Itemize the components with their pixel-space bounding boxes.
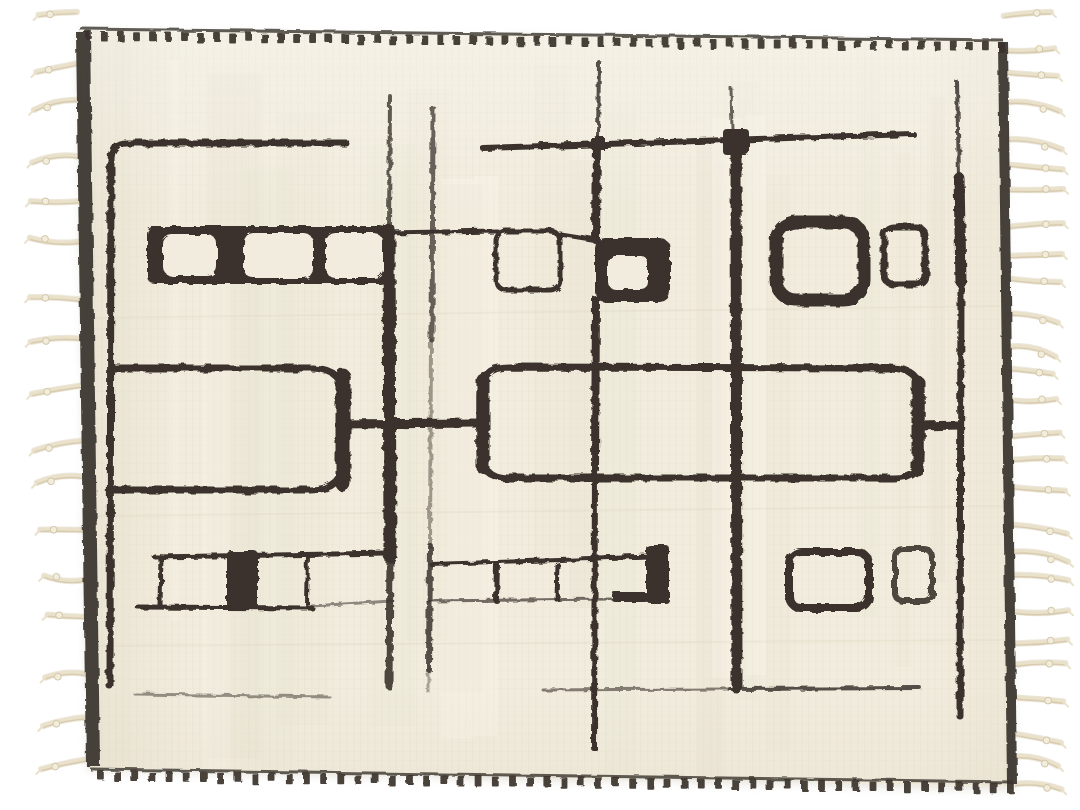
stitch-mark [303, 773, 310, 785]
stitch-mark [698, 779, 705, 789]
fringe-tassel [1012, 637, 1072, 645]
fringe-tassel [25, 295, 81, 303]
stitch-mark [534, 36, 541, 45]
stitch-mark [389, 35, 396, 45]
stitch-mark [784, 779, 791, 789]
stitch-mark [229, 33, 236, 43]
stitch-mark [101, 32, 108, 42]
stitch-mark [337, 773, 344, 784]
fringe-tassel [26, 198, 80, 206]
stitch-mark [245, 32, 252, 41]
stitch-mark [902, 41, 909, 51]
fringe-tassel [1005, 72, 1063, 81]
stitch-mark [372, 774, 379, 785]
fringe-tassel [38, 717, 87, 731]
stitch-mark [662, 37, 669, 47]
vertical-line-5-main [736, 155, 737, 688]
stitch-mark [437, 35, 444, 46]
stitch-mark [678, 39, 685, 50]
stitch-mark [165, 33, 172, 42]
stitch-mark [578, 776, 585, 786]
vertical-line-2-main [389, 230, 390, 556]
stitch-mark [389, 775, 396, 787]
stitch-mark [518, 37, 525, 48]
stitch-mark [85, 31, 92, 40]
fringe-tassel [1014, 756, 1063, 771]
stitch-mark [406, 774, 413, 784]
stitch-mark [904, 782, 911, 794]
fringe-tassel [1011, 575, 1073, 585]
stitch-mark [421, 36, 428, 46]
fringe-tassel [1014, 783, 1066, 794]
stitch-mark [357, 35, 364, 46]
stitch-mark [405, 34, 412, 43]
center-vertical-mid [596, 140, 597, 240]
stitch-mark [614, 38, 621, 47]
fringe-tassel [1010, 430, 1065, 438]
stitch-mark [286, 774, 293, 785]
stitch-mark [938, 782, 945, 793]
connector-left [344, 423, 480, 424]
stitch-mark [550, 37, 557, 47]
fringe-tassel [1009, 369, 1058, 379]
stitch-mark [790, 39, 797, 49]
stitch-mark [261, 34, 268, 44]
stitch-mark [806, 40, 813, 49]
stitch-mark [561, 777, 568, 789]
motif-link-line-1 [388, 231, 497, 233]
stitch-mark [664, 779, 671, 789]
fringe-tassel [1013, 697, 1068, 706]
center-vertical-top [598, 62, 599, 140]
stitch-mark [453, 36, 460, 45]
junction-blob-center [591, 137, 604, 150]
stitch-mark [325, 35, 332, 44]
stitch-mark [990, 782, 997, 794]
stitch-mark [543, 776, 550, 787]
stitch-mark [870, 41, 877, 51]
stitch-mark [767, 780, 774, 791]
stitch-mark [742, 39, 749, 49]
fringe-tassel [1008, 346, 1060, 361]
stitch-mark [921, 781, 928, 791]
vertical-line-2-top [389, 96, 390, 229]
stitch-mark [595, 778, 602, 789]
stitch-mark [598, 36, 605, 47]
fringe-tassel [1008, 314, 1063, 328]
fringe-tassel [31, 64, 77, 78]
stitch-mark [149, 772, 156, 782]
stitch-mark [252, 773, 259, 784]
stitch-mark [475, 775, 482, 787]
stitch-mark [681, 778, 688, 789]
rug-image [0, 0, 1080, 810]
fringe-tassel [1014, 734, 1066, 748]
center-vertical-low2 [594, 470, 595, 748]
bottom-line-center [543, 689, 730, 690]
stitch-mark [956, 781, 963, 791]
stitch-mark [309, 33, 316, 43]
stitch-mark [887, 780, 894, 791]
stitch-mark [181, 32, 188, 41]
fringe-tassel [43, 612, 86, 620]
stitch-mark [469, 35, 476, 45]
stitch-mark [183, 772, 190, 782]
fringe-tassel [1006, 139, 1067, 154]
fringe-tassel [29, 441, 83, 456]
stitch-mark [133, 32, 140, 41]
stitch-mark [801, 781, 808, 792]
stitch-mark [629, 778, 636, 789]
fringe-tassel [1004, 10, 1056, 18]
stitch-mark [582, 37, 589, 47]
stitch-mark [200, 771, 207, 782]
stitch-mark [492, 776, 499, 786]
stitch-mark [973, 783, 980, 794]
stitch-mark [131, 771, 138, 783]
fringe-tassel [32, 476, 84, 488]
stitch-mark [630, 37, 637, 47]
vertical-line-3-top [432, 108, 433, 340]
stitch-mark [423, 776, 430, 787]
stitch-mark [998, 42, 1005, 53]
fringe-tassel [1011, 551, 1073, 566]
fringe-tassel [1009, 396, 1061, 404]
stitch-mark [355, 775, 362, 785]
rug-body [60, 20, 1030, 809]
stitch-mark [197, 33, 204, 44]
fringe-tassel [25, 236, 80, 245]
fringe-tassel [29, 100, 78, 115]
stitch-mark [217, 773, 224, 785]
stitch-mark [835, 781, 842, 791]
stitch-mark [934, 42, 941, 51]
fringe-tassel [1007, 278, 1065, 287]
fringe-tassel [1007, 251, 1067, 259]
stitch-mark [646, 777, 653, 789]
stitch-mark [853, 780, 860, 791]
fringe-tassel [27, 155, 79, 167]
stitch-mark [886, 40, 893, 49]
rug-photo [0, 0, 1080, 810]
stitch-mark [526, 777, 533, 787]
fringe-tassel [1013, 660, 1071, 668]
stitch-mark [710, 39, 717, 49]
stitch-mark [950, 40, 957, 50]
stitch-mark [341, 33, 348, 43]
stitch-mark [509, 775, 516, 786]
stitch-mark [485, 36, 492, 45]
vertical-line-3-mid [430, 340, 431, 546]
stitch-mark [277, 33, 284, 44]
right-frame-mid [959, 178, 961, 282]
selvage-left [83, 32, 93, 766]
fringe-tassel [1005, 102, 1065, 117]
motif-window-band-top [147, 226, 388, 284]
stitch-mark [715, 778, 722, 789]
fringe-tassel [27, 385, 82, 399]
fringe-tassel [41, 673, 87, 683]
stitch-mark [646, 38, 653, 47]
stitch-mark [269, 772, 276, 782]
stitch-mark [213, 32, 220, 41]
stitch-mark [440, 775, 447, 785]
stitch-mark [774, 40, 781, 49]
center-vertical-low [595, 300, 596, 470]
stitch-mark [694, 38, 701, 47]
fringe-tassel [34, 11, 77, 20]
fringe-tassel [1006, 186, 1068, 194]
stitch-mark [818, 780, 825, 792]
fringe-tassel [1010, 456, 1068, 464]
right-frame-top [957, 82, 959, 178]
stitch-mark [458, 776, 465, 787]
fringe-tassel [1010, 486, 1070, 495]
motif-solid-square-with-window [595, 238, 670, 302]
stitch-mark [612, 777, 619, 787]
stitch-mark [822, 39, 829, 49]
fringe-tassel [35, 526, 84, 534]
fringe-tassel [26, 338, 82, 347]
vertical-line-5-top [731, 88, 732, 130]
stitch-mark [982, 41, 989, 51]
stitch-mark [918, 40, 925, 51]
stitch-mark [117, 31, 124, 42]
right-frame-low [960, 282, 961, 716]
stitch-mark [1007, 783, 1014, 793]
stitch-mark [758, 38, 765, 49]
stitch-mark [149, 31, 156, 41]
fringe-tassel [1012, 607, 1073, 615]
stitch-mark [114, 771, 121, 782]
stitch-mark [566, 36, 573, 45]
connector-right [921, 425, 959, 426]
fringe-tassel [1007, 221, 1068, 229]
stitch-mark [293, 34, 300, 43]
fringe-tassel [39, 573, 85, 582]
stitch-mark [97, 770, 104, 780]
stitch-mark [854, 39, 861, 48]
stitch-mark [234, 772, 241, 782]
vertical-line-2-low [389, 556, 390, 686]
stitch-mark [166, 771, 173, 782]
bottom-line-right [730, 688, 920, 689]
stitch-mark [966, 42, 973, 51]
stitch-mark [750, 779, 757, 789]
fringe-tassel [1011, 525, 1072, 539]
stitch-mark [838, 40, 845, 51]
fringe-tassel [1004, 46, 1059, 54]
stitch-mark [732, 780, 739, 792]
stitch-mark [320, 774, 327, 784]
fringe-tassel [36, 759, 88, 774]
fringe-tassel [1006, 164, 1068, 174]
stitch-mark [726, 38, 733, 47]
stitch-mark [870, 781, 877, 791]
stitch-mark [502, 35, 509, 45]
stitch-mark [373, 34, 380, 43]
